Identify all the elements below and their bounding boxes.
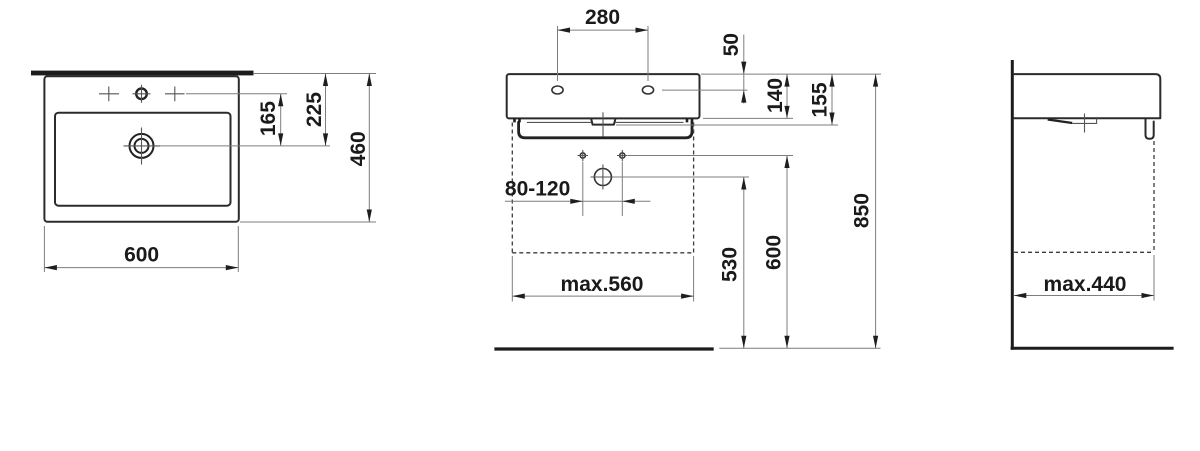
svg-text:225: 225: [303, 92, 326, 127]
svg-text:600: 600: [763, 235, 786, 270]
svg-text:850: 850: [851, 193, 874, 228]
svg-text:140: 140: [764, 78, 787, 113]
svg-text:600: 600: [124, 244, 159, 267]
svg-text:280: 280: [585, 6, 620, 29]
svg-text:max.440: max.440: [1044, 273, 1127, 296]
svg-text:155: 155: [809, 82, 832, 117]
svg-text:80-120: 80-120: [505, 178, 570, 201]
svg-text:460: 460: [347, 131, 370, 166]
svg-text:530: 530: [719, 247, 742, 282]
svg-text:165: 165: [257, 101, 280, 136]
svg-text:50: 50: [720, 33, 743, 56]
svg-text:max.560: max.560: [561, 273, 644, 296]
